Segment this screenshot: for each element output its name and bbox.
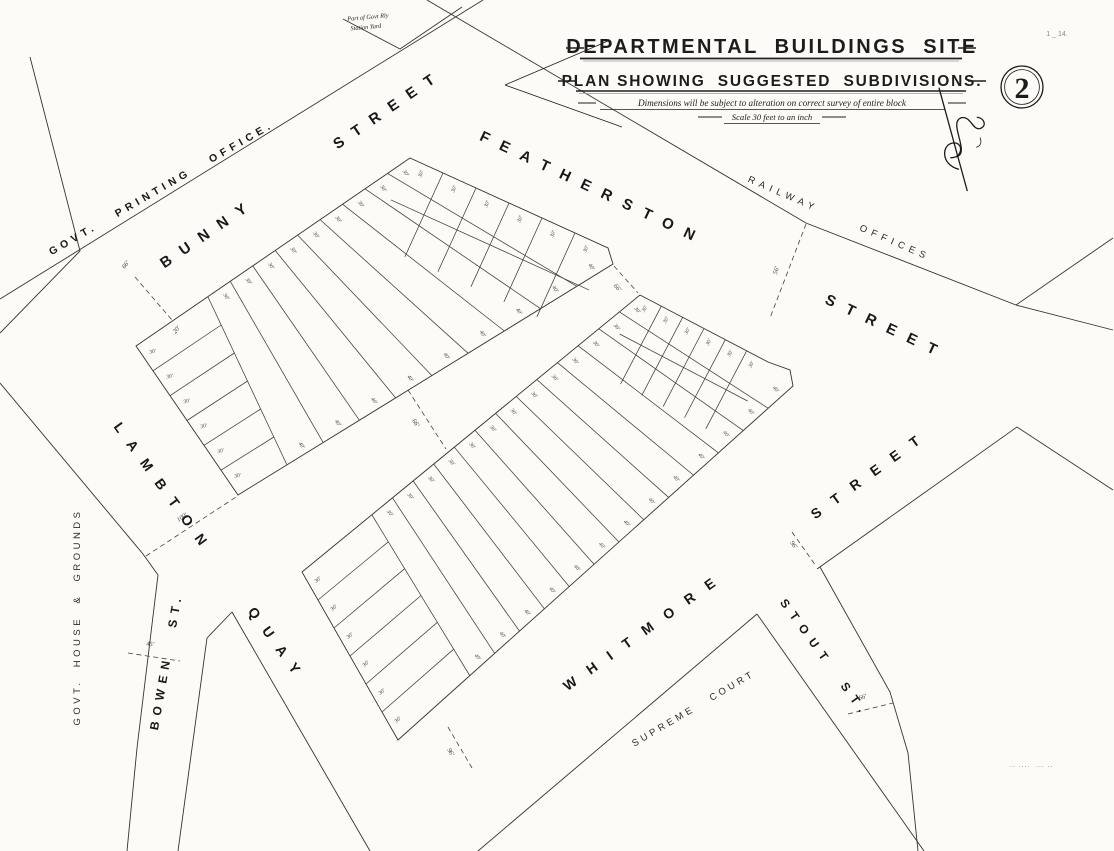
area-label-govt-house-grounds: GOVT. HOUSE & GROUNDS xyxy=(72,508,83,725)
title-note: Dimensions will be subject to alteration… xyxy=(637,98,907,108)
plan-map: 30′40′30′40′30′40′30′40′30′40′30′40′30′4… xyxy=(0,0,1114,851)
sheet-number: 2 xyxy=(1015,72,1030,105)
plan-subtitle: PLAN SHOWING SUGGESTED SUBDIVISIONS. xyxy=(562,73,983,90)
sheet-reference: 1 _ 14. xyxy=(1046,31,1067,38)
scale-note: Scale 30 feet to an inch xyxy=(732,112,812,122)
printer-imprint: .. .... ... .. xyxy=(1010,763,1053,769)
paper-background xyxy=(0,0,1114,851)
plan-sheet: 30′40′30′40′30′40′30′40′30′40′30′40′30′4… xyxy=(0,0,1114,851)
street-width-label: 45′ xyxy=(146,640,155,648)
plan-title: DEPARTMENTAL BUILDINGS SITE xyxy=(566,36,977,58)
